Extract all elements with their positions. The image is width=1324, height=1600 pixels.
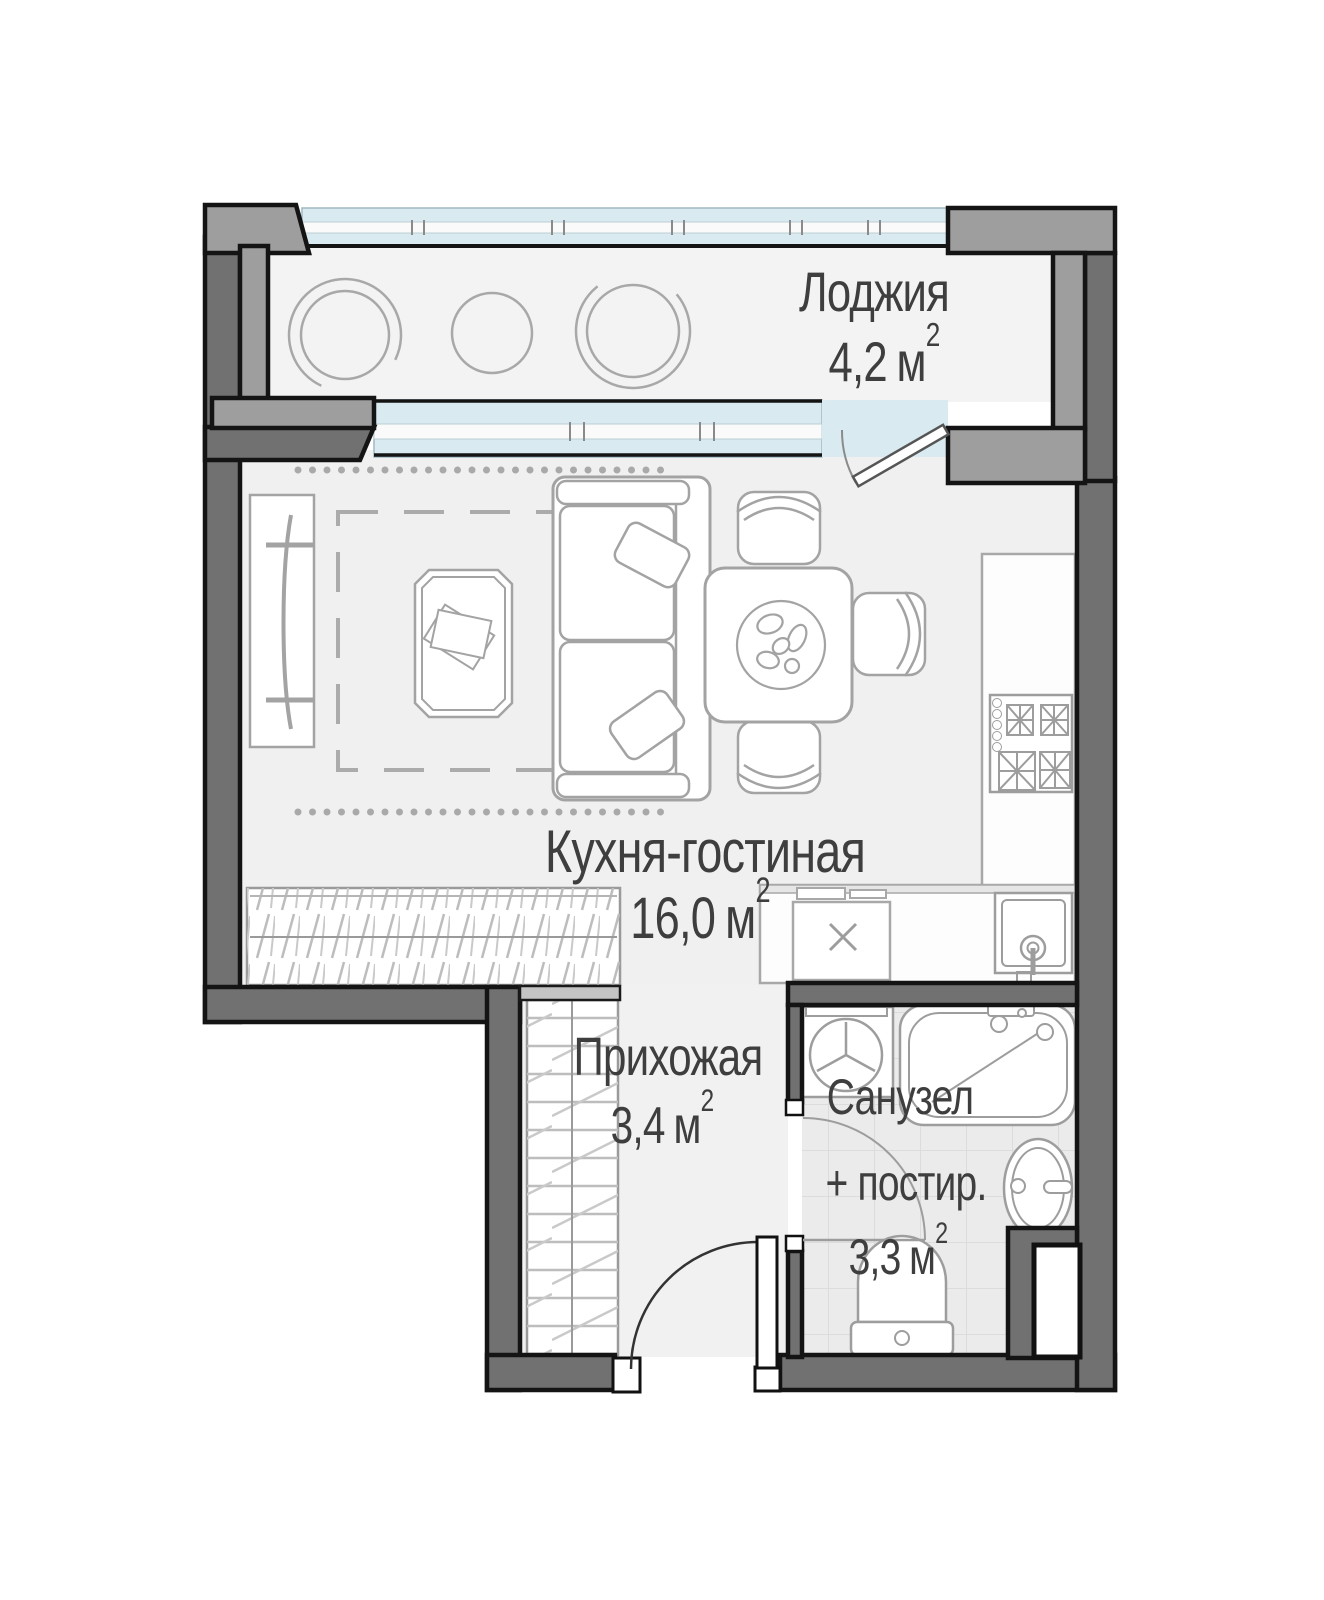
- sofa: [553, 477, 710, 800]
- kitchen-sink-icon: [995, 893, 1072, 982]
- wall-right-upper: [1085, 253, 1115, 481]
- window-top: [302, 208, 948, 246]
- wall-loggia-right: [1053, 253, 1085, 430]
- room-label-kitchen-living-area: 16,0м2: [536, 890, 864, 948]
- room-label-bathroom-name2: + постир.: [742, 1158, 1070, 1208]
- plate-icon: [737, 601, 825, 689]
- wall-corner-top-right: [948, 208, 1115, 253]
- wall-stub-right: [948, 428, 1085, 483]
- room-label-bathroom-name: Санузел: [736, 1072, 1064, 1122]
- stove-knobs: [993, 699, 1002, 752]
- balcony-door-gap: [822, 400, 948, 457]
- wall-bathroom-top: [788, 983, 1077, 1005]
- wall-pillar-left: [212, 398, 374, 428]
- dining-chair: [737, 721, 821, 793]
- tv-console: [250, 495, 314, 747]
- coffee-table: [415, 570, 512, 717]
- entrance-door-frame-right: [755, 1367, 780, 1391]
- wall-loggia-jut: [205, 427, 374, 460]
- stove-icon: [990, 695, 1072, 792]
- wall-loggia-left-strip: [240, 246, 268, 402]
- wall-left: [205, 237, 240, 1022]
- floor-plan-page: Лоджия 4,2м2 Кухня-гостиная 16,0м2 Прихо…: [0, 0, 1324, 1600]
- window-bottom: [374, 400, 948, 457]
- room-label-bathroom-area: 3,3м2: [734, 1232, 1062, 1282]
- wall-right: [1077, 478, 1115, 1390]
- dining-chair: [737, 492, 821, 564]
- room-label-loggia-area: 4,2м2: [720, 334, 1048, 390]
- wardrobe-divider: [520, 986, 620, 1000]
- wall-bottom-left-horizontal: [205, 987, 520, 1022]
- wall-bottom-entrance-left: [487, 1355, 615, 1390]
- dining-chair: [853, 592, 925, 676]
- room-label-loggia-name: Лоджия: [710, 264, 1038, 320]
- room-label-kitchen-living-name: Кухня-гостиная: [541, 822, 869, 882]
- floor-plan: [0, 0, 1324, 1600]
- entrance-door-frame-left: [613, 1358, 640, 1392]
